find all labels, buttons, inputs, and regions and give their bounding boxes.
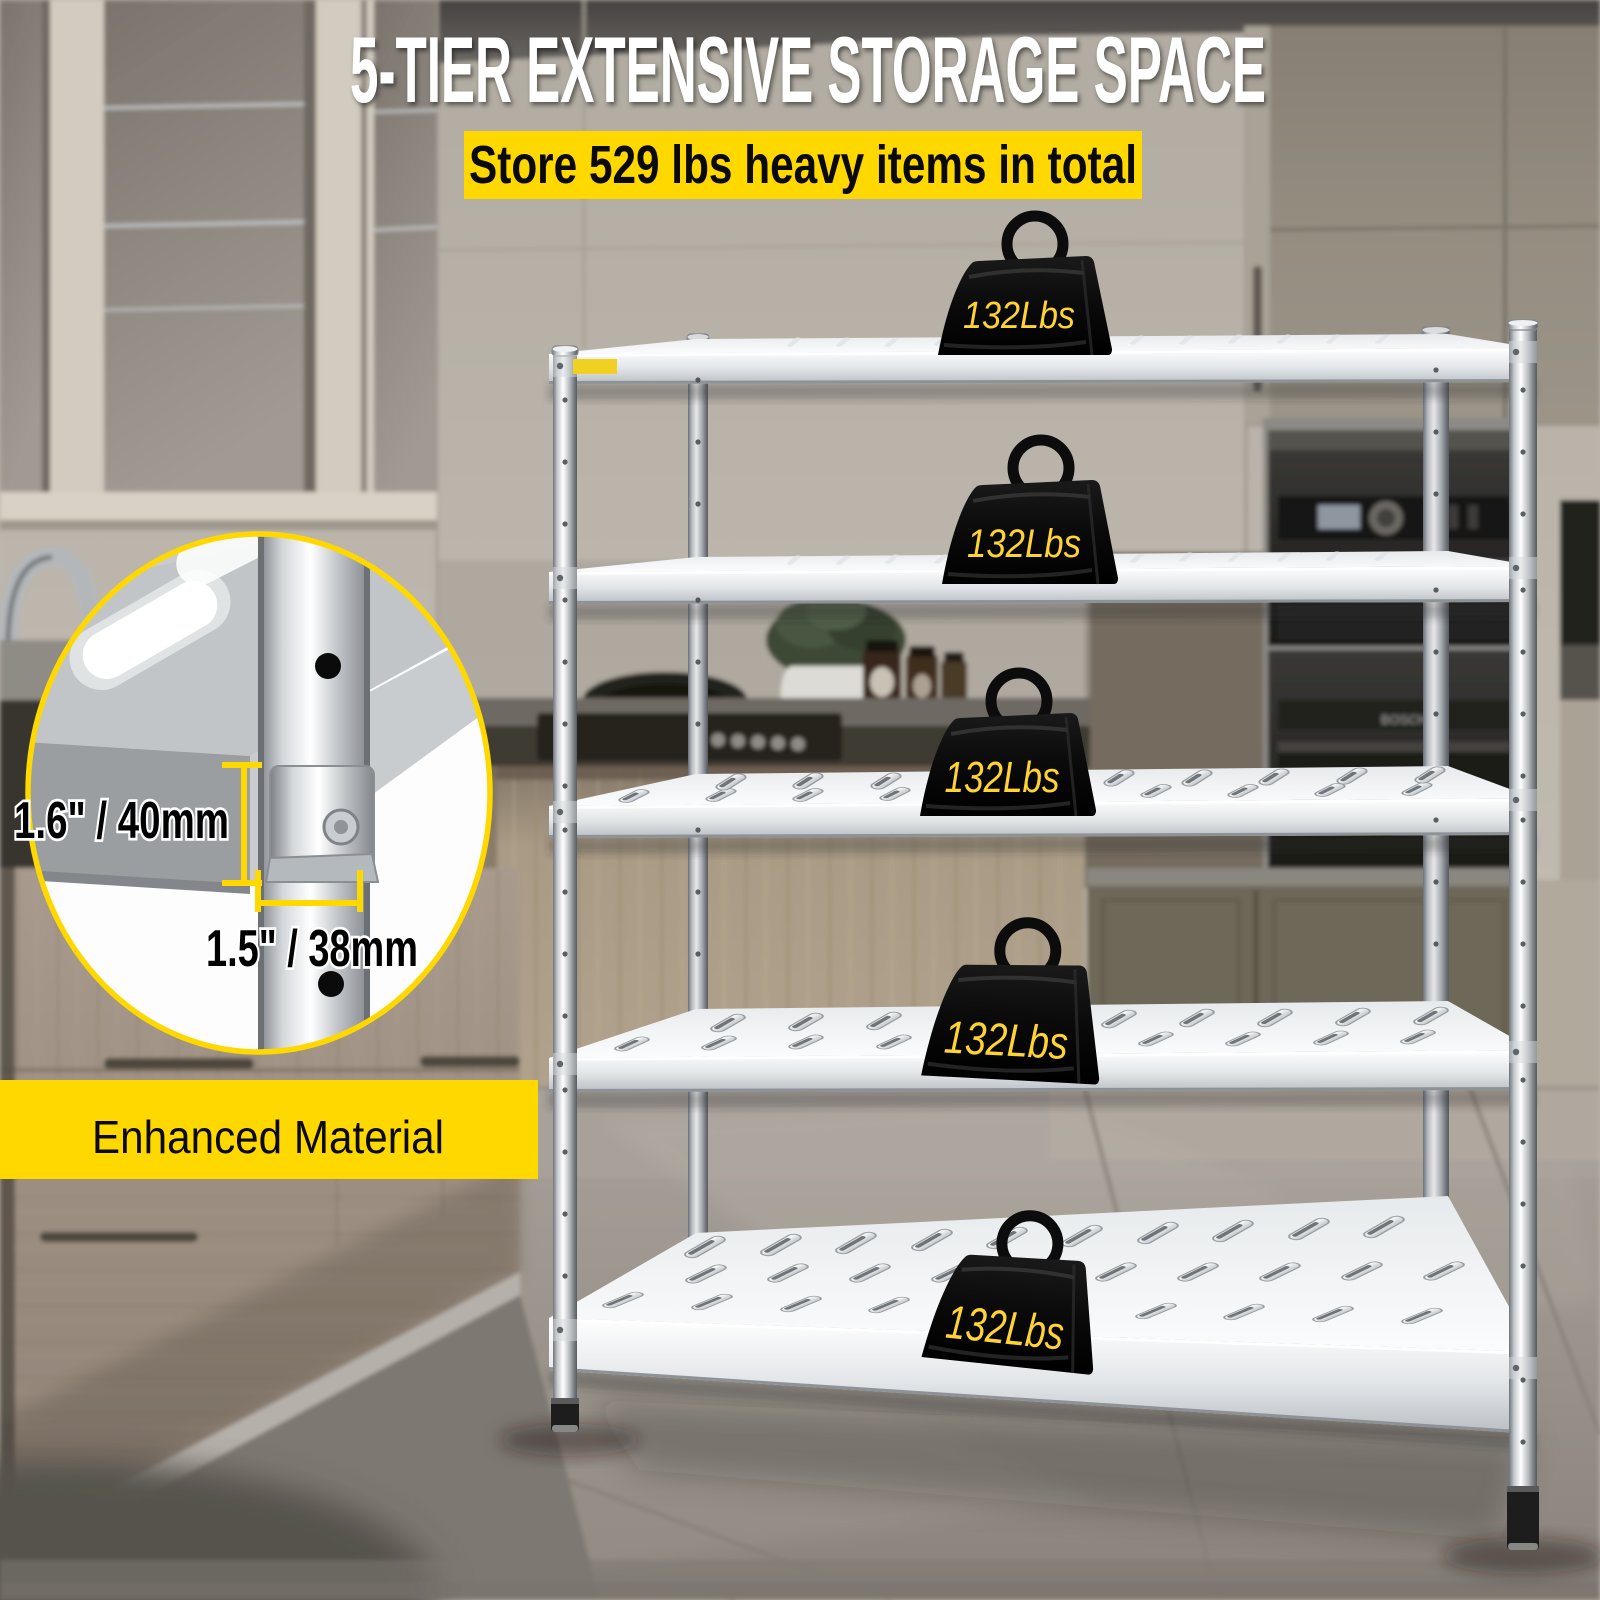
svg-text:1.5" / 38mm: 1.5" / 38mm [206,920,418,978]
svg-text:Store 529 lbs heavy items in t: Store 529 lbs heavy items in total [469,135,1137,195]
svg-text:1.6" / 40mm: 1.6" / 40mm [14,792,229,850]
svg-text:132Lbs: 132Lbs [963,295,1075,337]
svg-text:BOSCH: BOSCH [1381,712,1427,727]
svg-text:132Lbs: 132Lbs [943,1011,1070,1069]
svg-text:Enhanced Material: Enhanced Material [92,1111,444,1163]
svg-text:5-TIER EXTENSIVE STORAGE SPACE: 5-TIER EXTENSIVE STORAGE SPACE [350,17,1266,122]
svg-text:132Lbs: 132Lbs [967,522,1081,566]
svg-text:132Lbs: 132Lbs [945,753,1060,802]
